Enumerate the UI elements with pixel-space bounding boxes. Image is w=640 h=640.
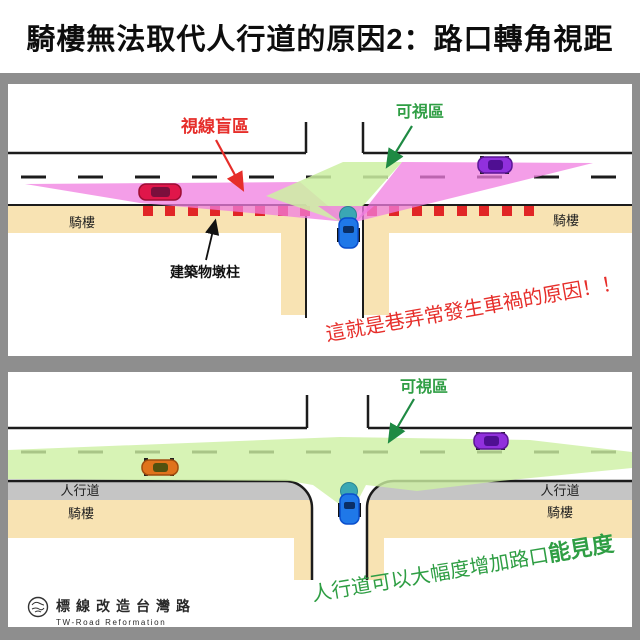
sidewalk-label-left: 人行道: [60, 483, 99, 498]
car-red: [139, 184, 181, 200]
arcade-band-left-bottom: [8, 500, 311, 538]
blind-zone-label: 視線盲區: [180, 116, 249, 136]
car-purple-top: [478, 156, 512, 174]
arcade-label-left-bottom: 騎樓: [68, 506, 94, 521]
arcade-column-left-bottom: [294, 538, 311, 580]
arcade-column-right: [363, 233, 389, 315]
pillar-label: 建築物墩柱: [170, 264, 240, 280]
arcade-label-right-bottom: 騎樓: [547, 505, 573, 520]
brand-block: 標線改造台灣路 TW-Road Reformation: [56, 596, 196, 627]
infographic-page: 騎樓無法取代人行道的原因2：路口轉角視距: [0, 0, 640, 640]
road-diagram: 視線盲區 可視區 騎樓 騎樓 建築物墩柱 這就是巷弄常發生車禍的原因！！: [0, 0, 640, 640]
brand-logo-icon: [27, 596, 49, 623]
arcade-label-left-top: 騎樓: [69, 215, 95, 230]
car-observer-bottom: [338, 483, 361, 525]
arcade-label-right-top: 騎樓: [553, 213, 579, 228]
car-observer-top: [337, 207, 360, 249]
brand-subtitle: TW-Road Reformation: [56, 618, 196, 627]
visible-zone-label-bottom: 可視區: [400, 377, 448, 396]
arcade-band-right-bottom: [367, 500, 632, 538]
arcade-column-left: [281, 233, 306, 315]
car-orange: [142, 458, 178, 476]
brand-name: 標線改造台灣路: [56, 596, 196, 616]
sidewalk-label-right: 人行道: [540, 483, 579, 498]
car-purple-bottom: [474, 432, 508, 450]
visible-zone-label-top: 可視區: [396, 102, 444, 121]
